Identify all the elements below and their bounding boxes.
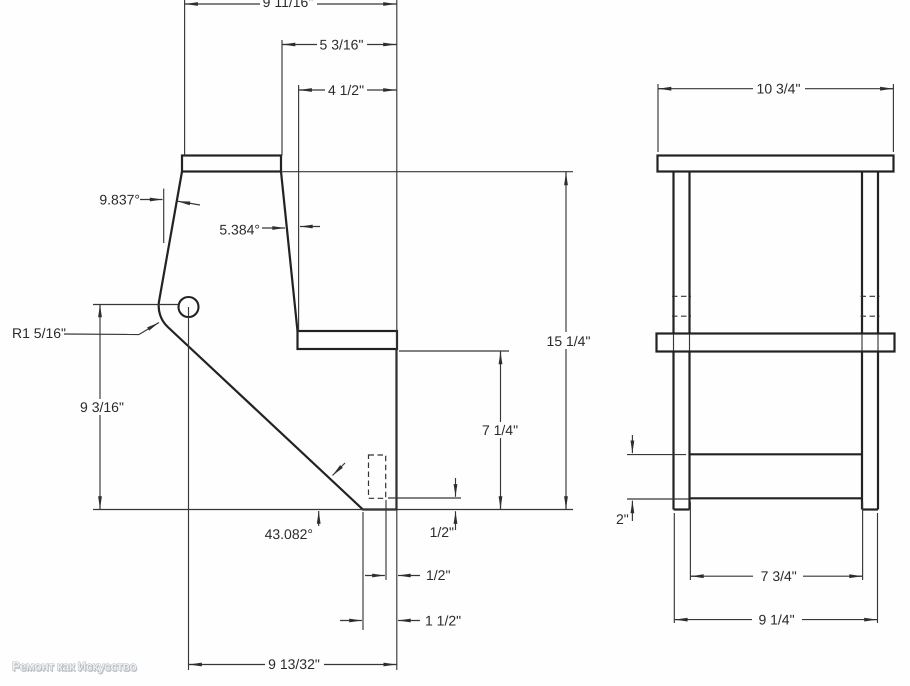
svg-text:4 1/2": 4 1/2" <box>328 82 364 98</box>
svg-text:5.384°: 5.384° <box>219 222 260 238</box>
svg-text:1 1/2": 1 1/2" <box>425 613 461 629</box>
svg-text:9.837°: 9.837° <box>99 192 140 208</box>
svg-text:9 3/16": 9 3/16" <box>80 399 124 415</box>
svg-text:9 13/32": 9 13/32" <box>268 656 320 672</box>
svg-text:9 11/16": 9 11/16" <box>263 0 314 10</box>
svg-text:1/2": 1/2" <box>430 524 454 540</box>
svg-text:2": 2" <box>616 511 629 527</box>
svg-text:7 1/4": 7 1/4" <box>482 422 518 438</box>
svg-text:43.082°: 43.082° <box>265 526 313 542</box>
svg-text:5 3/16": 5 3/16" <box>320 37 364 53</box>
svg-text:Ремонт как Искусство: Ремонт как Искусство <box>12 659 137 673</box>
svg-text:10 3/4": 10 3/4" <box>757 81 801 97</box>
svg-text:1/2": 1/2" <box>426 567 450 583</box>
svg-text:9 1/4": 9 1/4" <box>758 612 794 628</box>
svg-text:15 1/4": 15 1/4" <box>547 333 591 349</box>
svg-text:7 3/4": 7 3/4" <box>761 568 797 584</box>
svg-text:R1 5/16": R1 5/16" <box>12 325 66 341</box>
